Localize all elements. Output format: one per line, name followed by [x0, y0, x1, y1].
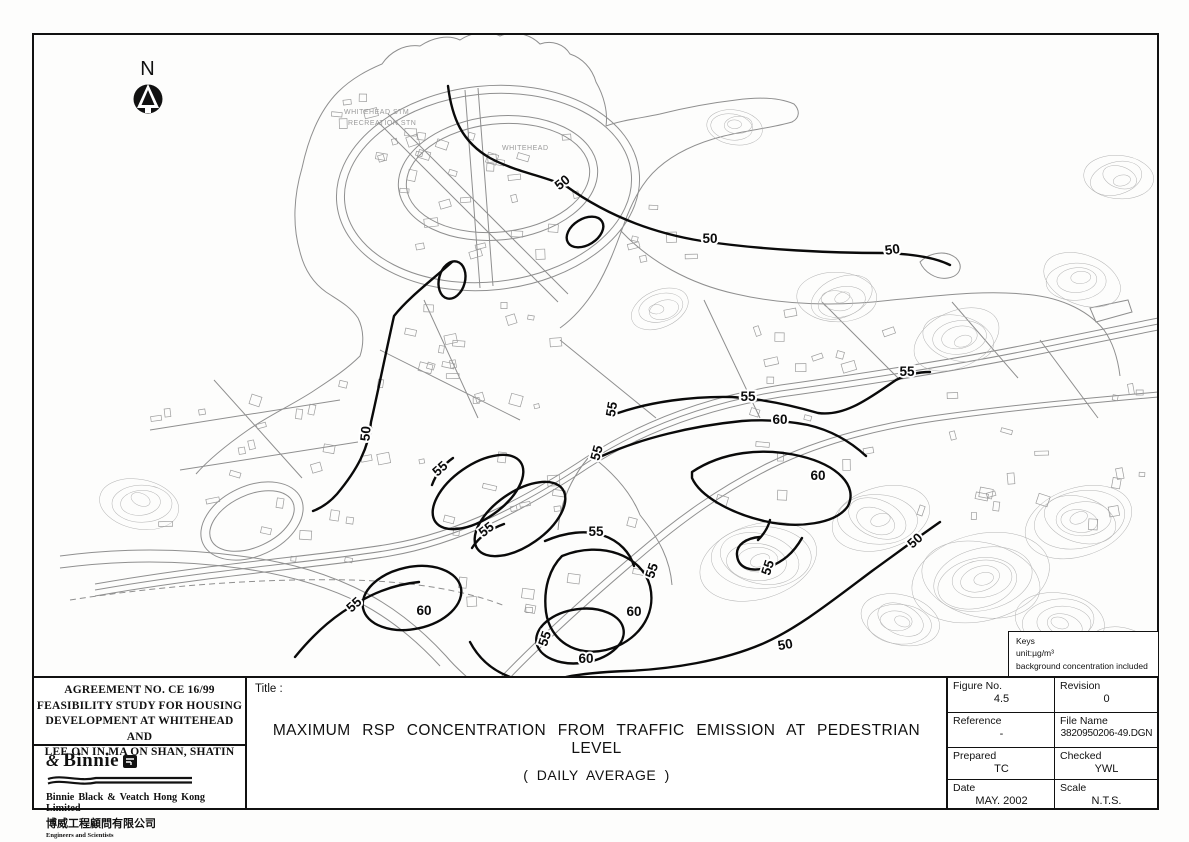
figure-title: MAXIMUM RSP CONCENTRATION FROM TRAFFIC E…: [247, 722, 946, 783]
keys-box: Keys unit:µg/m³ background concentration…: [1008, 631, 1159, 676]
title-label: Title :: [255, 683, 283, 695]
contour-label: 60: [578, 651, 593, 666]
reference-cell: Reference -: [948, 713, 1055, 747]
contour-label: 55: [899, 364, 915, 379]
company-logo: & Binnie: [46, 750, 235, 772]
contour-value-labels: 5050505555556055505560555550555555606055…: [343, 172, 925, 666]
contour-map: WHITEHEAD STMRECREATION STNWHITEHEAD: [34, 35, 1157, 676]
reference-value: -: [953, 728, 1050, 740]
reference-label: Reference: [953, 715, 1050, 727]
company-name-chinese: 博威工程顧問有限公司: [46, 815, 235, 831]
place-label: WHITEHEAD STM: [344, 109, 409, 116]
file-name-cell: File Name 3820950206-49.DGN: [1055, 713, 1157, 747]
figure-no-value: 4.5: [953, 693, 1050, 705]
contour-label: 60: [810, 468, 825, 483]
north-arrow: N: [122, 58, 174, 122]
logo-swoosh-icon: [46, 775, 196, 785]
keys-note: background concentration included: [1016, 660, 1151, 672]
drawing-sheet: N: [0, 0, 1189, 842]
contour-label: 55: [603, 400, 620, 418]
file-name-value: 3820950206-49.DGN: [1060, 728, 1153, 739]
keys-unit: unit:µg/m³: [1016, 647, 1151, 659]
project-line: FEASIBILITY STUDY FOR HOUSING: [34, 699, 245, 715]
date-value: MAY. 2002: [953, 795, 1050, 807]
prepared-value: TC: [953, 763, 1050, 775]
terrain-contours: [95, 106, 1157, 676]
contour-label: 55: [588, 524, 604, 539]
date-cell: Date MAY. 2002: [948, 780, 1055, 808]
checked-value: YWL: [1060, 763, 1153, 775]
title-block-left: AGREEMENT NO. CE 16/99 FEASIBILITY STUDY…: [34, 678, 247, 808]
figure-no-cell: Figure No. 4.5: [948, 678, 1055, 712]
logo-text: Binnie: [63, 750, 119, 772]
scale-value: N.T.S.: [1060, 795, 1153, 807]
contour-label: 50: [777, 636, 794, 653]
building-blocks: [151, 94, 1145, 614]
contour-label: 55: [740, 389, 756, 404]
file-name-label: File Name: [1060, 715, 1153, 727]
title-block: AGREEMENT NO. CE 16/99 FEASIBILITY STUDY…: [32, 676, 1159, 810]
title-block-middle: Title : MAXIMUM RSP CONCENTRATION FROM T…: [247, 678, 948, 808]
logo-ampersand: &: [46, 751, 59, 771]
scale-label: Scale: [1060, 782, 1153, 794]
project-line: DEVELOPMENT AT WHITEHEAD AND: [34, 714, 245, 745]
company-block: & Binnie Binnie Black & Veatch Hong Kong…: [34, 746, 245, 839]
figure-title-line1: MAXIMUM RSP CONCENTRATION FROM TRAFFIC E…: [247, 722, 946, 758]
company-tagline: Engineers and Scientists: [46, 832, 235, 839]
contour-label: 50: [357, 425, 373, 441]
figure-no-label: Figure No.: [953, 680, 1050, 692]
company-name: Binnie Black & Veatch Hong Kong Limited: [46, 792, 235, 814]
north-label: N: [122, 58, 174, 81]
contour-label: 60: [626, 604, 641, 619]
project-description: AGREEMENT NO. CE 16/99 FEASIBILITY STUDY…: [34, 678, 245, 746]
contour-label: 55: [758, 558, 777, 577]
contour-label: 50: [702, 231, 717, 246]
revision-cell: Revision 0: [1055, 678, 1157, 712]
prepared-label: Prepared: [953, 750, 1050, 762]
prepared-cell: Prepared TC: [948, 748, 1055, 779]
contour-label: 55: [642, 561, 661, 580]
checked-label: Checked: [1060, 750, 1153, 762]
keys-title: Keys: [1016, 635, 1151, 647]
project-line: AGREEMENT NO. CE 16/99: [34, 683, 245, 699]
highway-group: [95, 318, 1157, 676]
scale-cell: Scale N.T.S.: [1055, 780, 1157, 808]
title-block-info: Figure No. 4.5 Revision 0 Reference - Fi…: [948, 678, 1157, 808]
contour-label: 60: [416, 603, 431, 618]
north-arrow-icon: [130, 81, 166, 117]
contour-label: 60: [772, 412, 787, 427]
road-group: [70, 71, 1098, 606]
figure-title-line2: ( DAILY AVERAGE ): [247, 767, 946, 783]
place-label: RECREATION STN: [348, 120, 416, 127]
contour-label: 50: [884, 241, 901, 258]
checked-cell: Checked YWL: [1055, 748, 1157, 779]
place-label: WHITEHEAD: [502, 145, 549, 152]
revision-value: 0: [1060, 693, 1153, 705]
date-label: Date: [953, 782, 1050, 794]
company-mark-icon: [123, 755, 137, 768]
revision-label: Revision: [1060, 680, 1153, 692]
contour-label: 55: [535, 629, 554, 648]
